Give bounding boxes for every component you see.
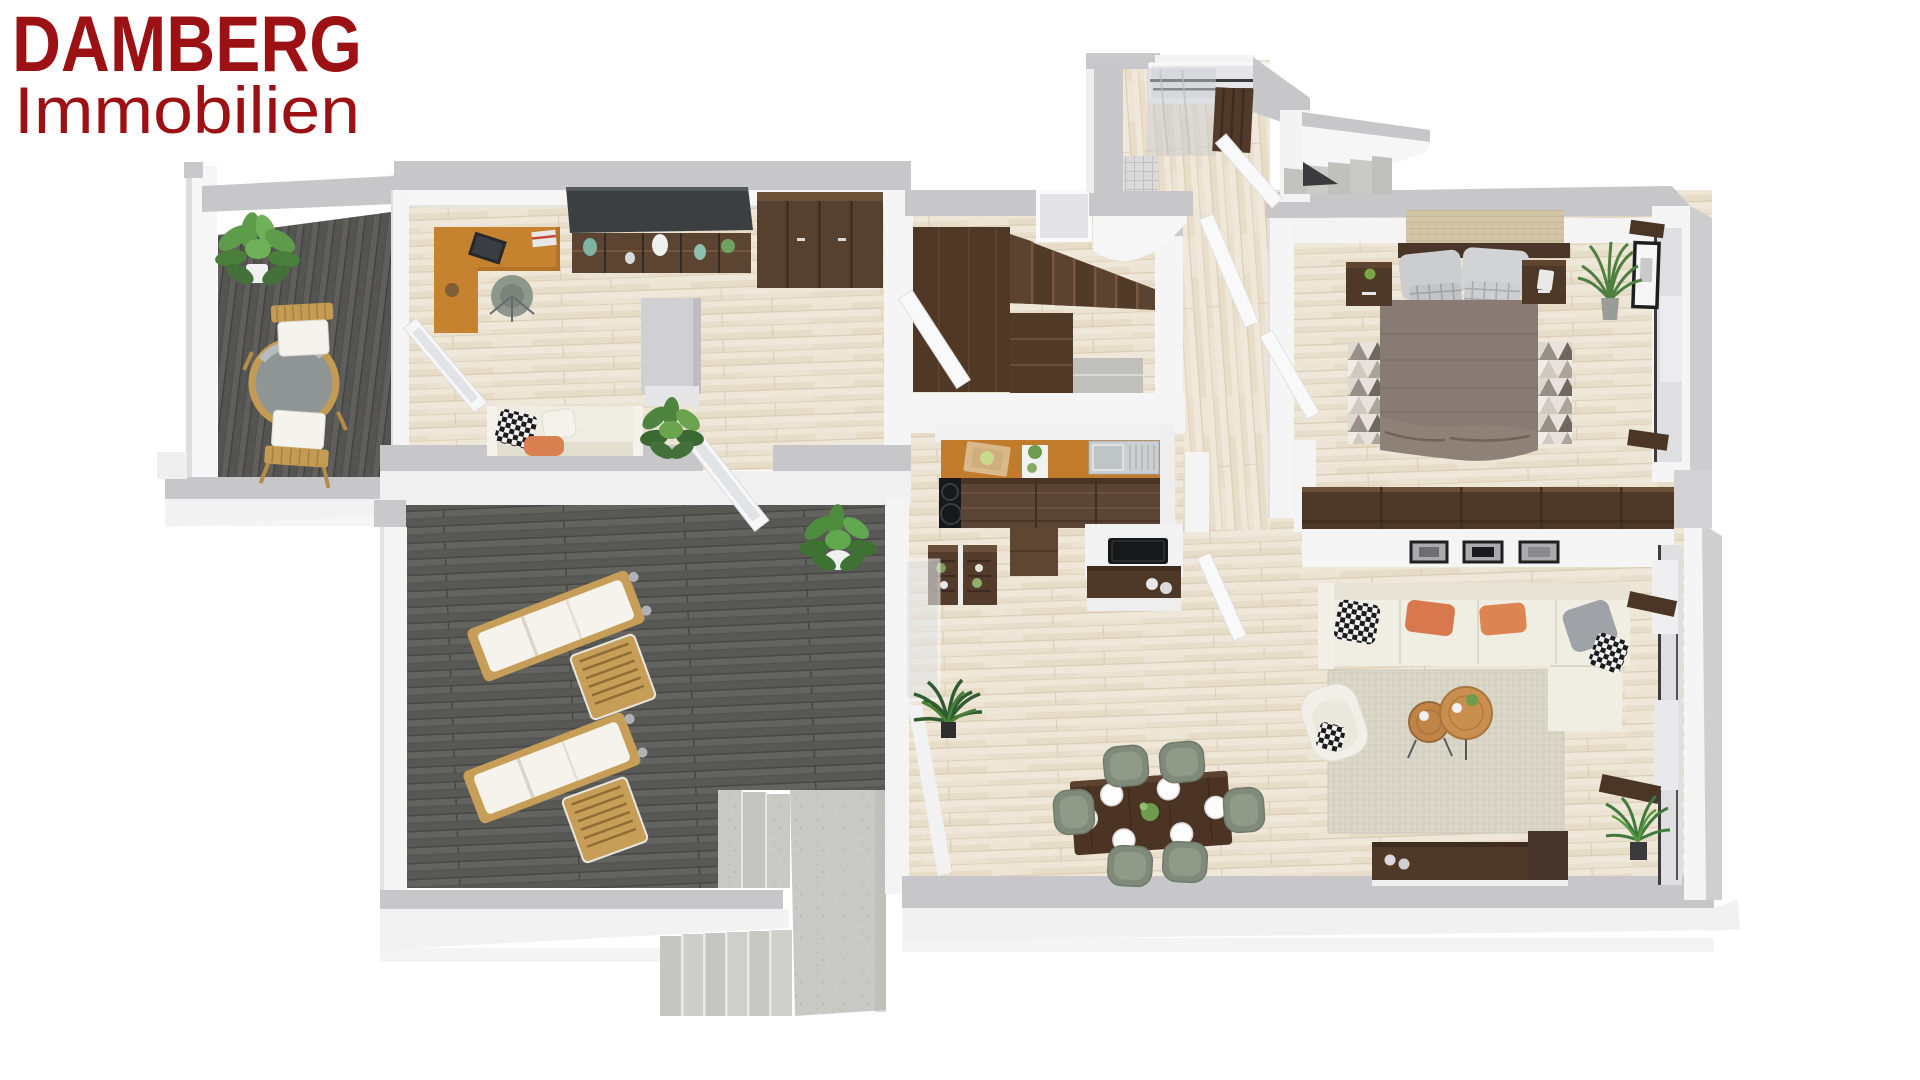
svg-text:Immobilien: Immobilien bbox=[14, 73, 360, 147]
